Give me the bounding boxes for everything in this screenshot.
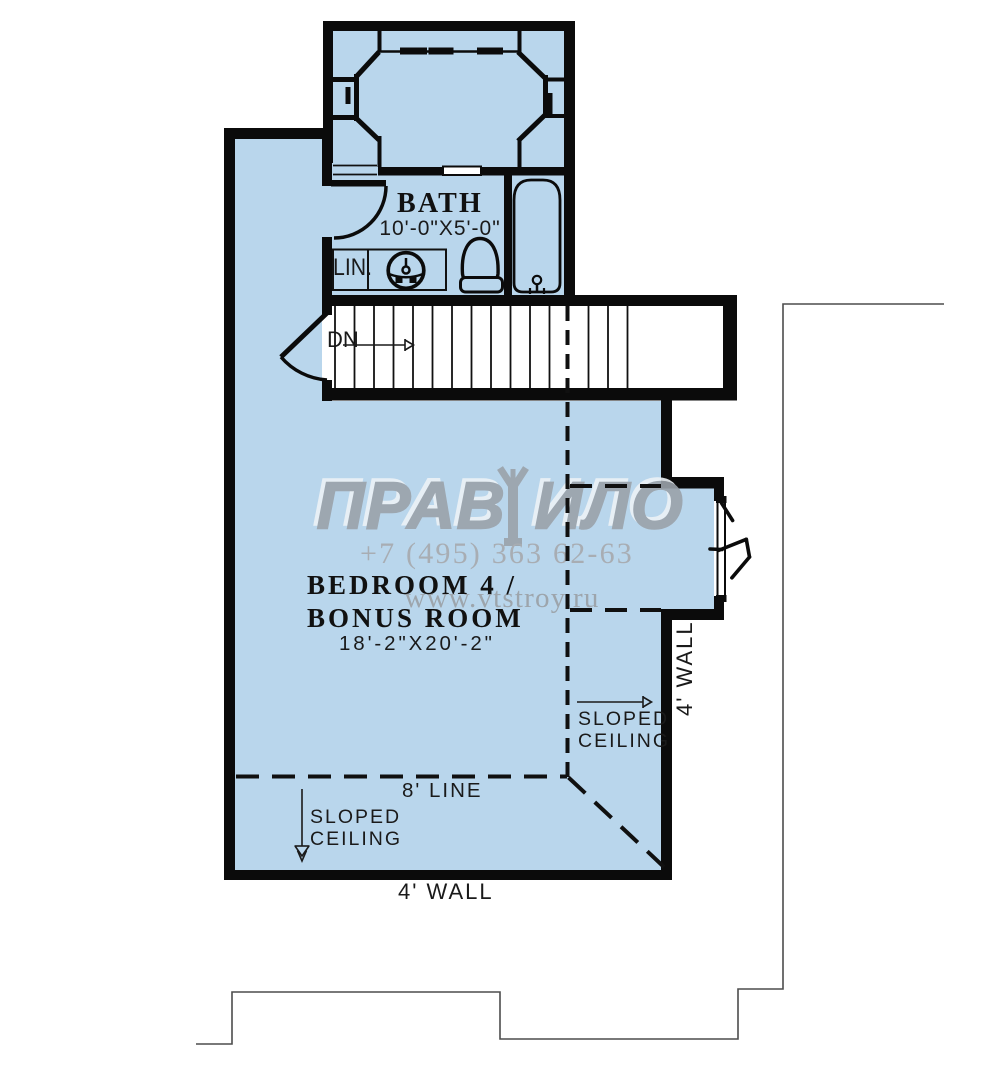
- svg-text:CEILING: CEILING: [310, 828, 402, 850]
- svg-text:10'-0"X5'-0": 10'-0"X5'-0": [379, 217, 500, 240]
- svg-text:CEILING: CEILING: [578, 730, 670, 752]
- svg-text:DN: DN: [327, 327, 359, 352]
- svg-text:8' LINE: 8' LINE: [402, 779, 483, 802]
- svg-text:BEDROOM 4 /: BEDROOM 4 /: [307, 570, 517, 600]
- svg-text:4' WALL: 4' WALL: [672, 620, 697, 716]
- svg-text:LIN.: LIN.: [333, 254, 372, 281]
- svg-text:+7 (495) 363 62-63: +7 (495) 363 62-63: [360, 537, 634, 570]
- svg-text:SLOPED: SLOPED: [578, 708, 669, 730]
- svg-text:ИЛО: ИЛО: [535, 469, 684, 544]
- svg-text:SLOPED: SLOPED: [310, 806, 401, 828]
- svg-text:BATH: BATH: [397, 188, 483, 219]
- svg-text:BONUS ROOM: BONUS ROOM: [307, 603, 524, 633]
- svg-text:4' WALL: 4' WALL: [398, 879, 494, 904]
- svg-text:18'-2"X20'-2": 18'-2"X20'-2": [339, 632, 495, 655]
- svg-text:ПРАВ: ПРАВ: [317, 469, 506, 544]
